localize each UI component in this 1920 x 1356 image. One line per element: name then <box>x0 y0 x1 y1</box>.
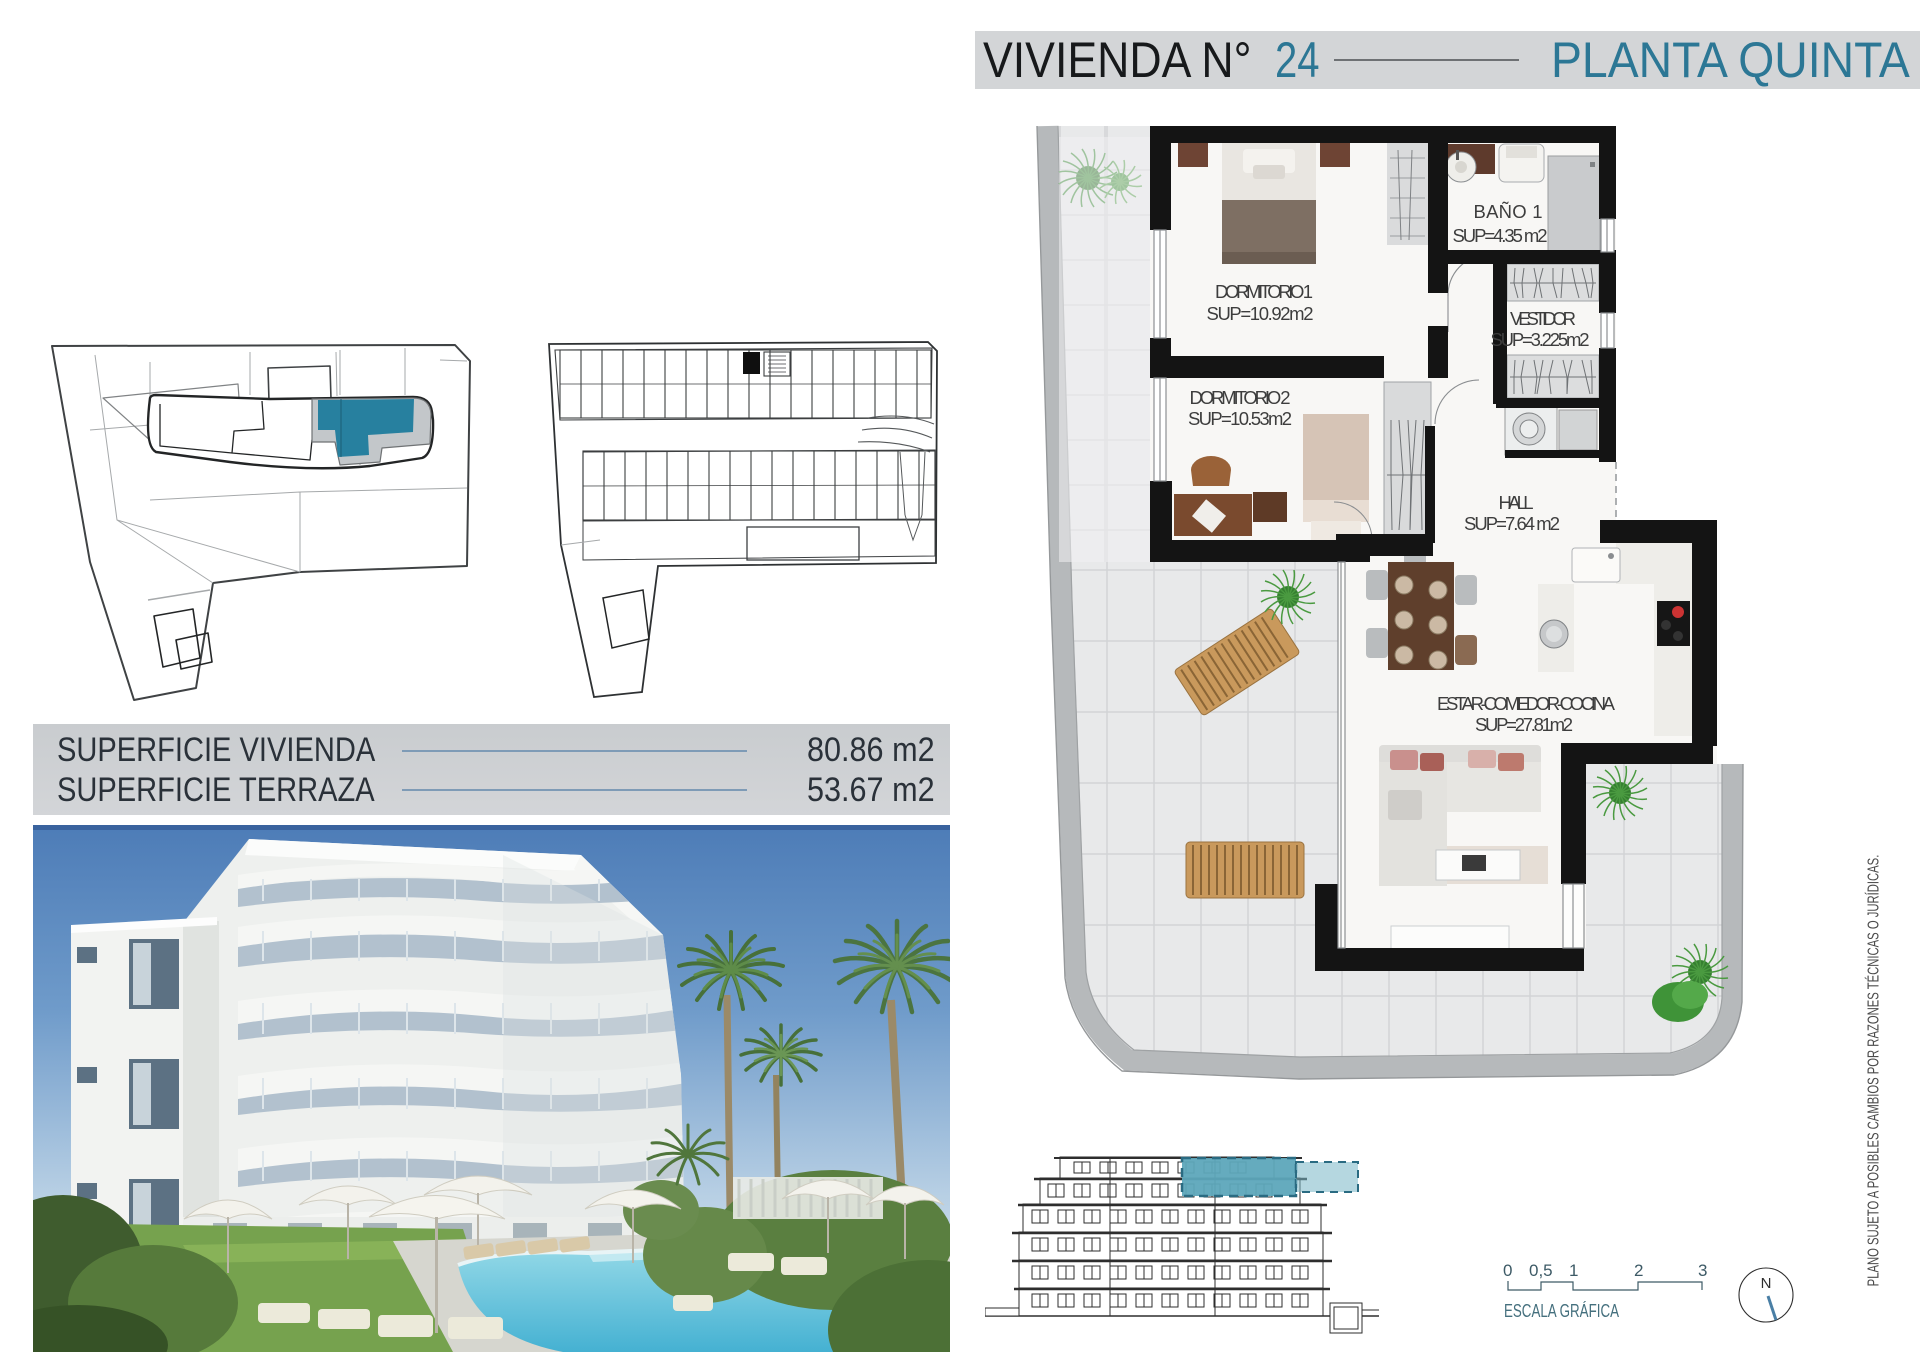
svg-text:SUP=27.81m2: SUP=27.81m2 <box>1475 714 1573 735</box>
svg-text:SUP=3.225m2: SUP=3.225m2 <box>1491 329 1590 350</box>
svg-text:ESCALA GRÁFICA: ESCALA GRÁFICA <box>1504 1301 1619 1321</box>
svg-text:1: 1 <box>1569 1261 1578 1280</box>
svg-text:VESTIDOR: VESTIDOR <box>1510 308 1576 329</box>
svg-text:SUP=4.35 m2: SUP=4.35 m2 <box>1453 225 1548 246</box>
svg-text:2: 2 <box>1634 1261 1643 1280</box>
svg-text:0: 0 <box>1503 1261 1512 1280</box>
svg-text:SUP=10.92m2: SUP=10.92m2 <box>1207 303 1314 324</box>
svg-text:0,5: 0,5 <box>1529 1261 1553 1280</box>
svg-text:N: N <box>1761 1275 1772 1292</box>
svg-text:DORMITORIO 2: DORMITORIO 2 <box>1190 387 1291 408</box>
svg-text:HALL: HALL <box>1499 492 1534 513</box>
svg-text:DORMITORIO 1: DORMITORIO 1 <box>1215 281 1313 302</box>
svg-text:3: 3 <box>1698 1261 1707 1280</box>
svg-text:SUP=10.53m2: SUP=10.53m2 <box>1188 408 1292 429</box>
svg-text:SUP=7.64 m2: SUP=7.64 m2 <box>1464 513 1560 534</box>
svg-text:BAÑO 1: BAÑO 1 <box>1474 201 1543 222</box>
svg-text:ESTAR-COMEDOR-COCINA: ESTAR-COMEDOR-COCINA <box>1437 693 1616 714</box>
